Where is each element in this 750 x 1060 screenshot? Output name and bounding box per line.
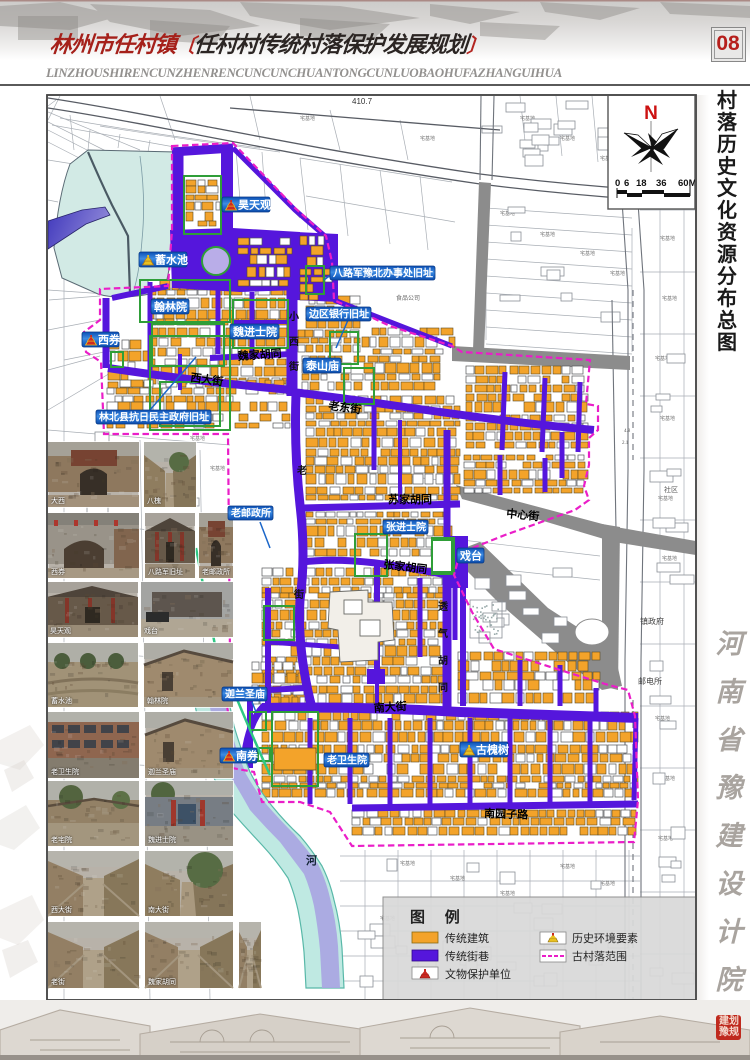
svg-text:宅基地: 宅基地 [500, 890, 515, 897]
svg-text:昊天观: 昊天观 [50, 627, 71, 635]
svg-text:戏台: 戏台 [144, 626, 158, 635]
svg-text:古村落范围: 古村落范围 [572, 949, 627, 963]
svg-text:6: 6 [624, 178, 629, 189]
svg-text:古槐树: 古槐树 [476, 743, 509, 757]
svg-text:胡: 胡 [438, 654, 448, 667]
svg-text:街: 街 [288, 360, 299, 373]
svg-text:戏台: 戏台 [459, 549, 482, 563]
svg-text:宅基地: 宅基地 [662, 555, 677, 562]
svg-text:迦兰圣庙: 迦兰圣庙 [148, 767, 176, 776]
svg-text:老街: 老街 [51, 977, 65, 986]
svg-text:南大街: 南大街 [148, 905, 169, 914]
svg-text:410.7: 410.7 [352, 97, 373, 106]
svg-text:宅基地: 宅基地 [580, 250, 595, 257]
svg-text:边区银行旧址: 边区银行旧址 [308, 308, 369, 321]
svg-text:街: 街 [293, 588, 304, 601]
svg-text:传统建筑: 传统建筑 [445, 931, 489, 945]
svg-text:4.8: 4.8 [624, 429, 631, 434]
svg-text:60M: 60M [678, 178, 697, 189]
svg-text:36: 36 [656, 178, 667, 189]
svg-text:宅基地: 宅基地 [210, 465, 225, 472]
svg-text:0: 0 [615, 178, 620, 189]
svg-text:老邮政所: 老邮政所 [202, 567, 230, 576]
svg-text:西券: 西券 [98, 333, 121, 347]
svg-text:宅基地: 宅基地 [300, 115, 315, 122]
svg-text:透: 透 [438, 600, 449, 613]
svg-text:文物保护单位: 文物保护单位 [445, 967, 511, 981]
svg-text:传统街巷: 传统街巷 [445, 949, 489, 963]
svg-text:蓄水池: 蓄水池 [51, 696, 72, 705]
svg-text:同: 同 [438, 682, 448, 694]
svg-text:宅基地: 宅基地 [450, 875, 465, 882]
svg-text:历史环境要素: 历史环境要素 [572, 931, 638, 945]
svg-text:翰林院: 翰林院 [147, 696, 168, 705]
svg-text:张进士院: 张进士院 [386, 521, 426, 534]
svg-text:N: N [644, 103, 658, 124]
svg-text:社区: 社区 [664, 485, 678, 494]
svg-text:邮电所: 邮电所 [638, 676, 662, 686]
svg-text:宅基地: 宅基地 [560, 135, 575, 142]
svg-text:老卫生院: 老卫生院 [51, 767, 79, 776]
svg-text:宅基地: 宅基地 [662, 295, 677, 302]
svg-text:宅基地: 宅基地 [658, 495, 673, 502]
svg-text:宅基地: 宅基地 [660, 415, 675, 422]
svg-text:林北县抗日民主政府旧址: 林北县抗日民主政府旧址 [99, 411, 209, 424]
svg-text:镇政府: 镇政府 [640, 616, 664, 626]
svg-text:迦兰圣庙: 迦兰圣庙 [225, 688, 265, 701]
svg-text:魏进士院: 魏进士院 [148, 835, 176, 844]
svg-text:魏家胡同: 魏家胡同 [148, 977, 176, 986]
svg-text:小: 小 [288, 310, 299, 323]
svg-text:泰山庙: 泰山庙 [305, 359, 339, 373]
svg-text:昊天观: 昊天观 [238, 199, 271, 212]
svg-text:八路军旧址: 八路军旧址 [148, 567, 183, 576]
svg-text:西大街: 西大街 [51, 905, 72, 914]
svg-text:河: 河 [306, 853, 317, 867]
svg-text:宅基地: 宅基地 [610, 270, 625, 277]
svg-text:八槐: 八槐 [147, 496, 161, 505]
svg-text:蓄水池: 蓄水池 [155, 253, 188, 267]
svg-text:老邮政所: 老邮政所 [230, 507, 271, 520]
svg-text:食品公司: 食品公司 [396, 294, 420, 302]
svg-text:苏家胡同: 苏家胡同 [388, 492, 432, 506]
svg-text:2.1: 2.1 [622, 441, 629, 446]
svg-text:宅基地: 宅基地 [540, 231, 555, 238]
svg-text:18: 18 [636, 178, 647, 189]
svg-text:西: 西 [289, 336, 299, 348]
svg-text:气: 气 [437, 627, 448, 640]
svg-text:宅基地: 宅基地 [660, 235, 675, 242]
svg-text:宅基地: 宅基地 [600, 880, 615, 887]
svg-text:翰林院: 翰林院 [154, 300, 187, 314]
svg-text:魏进士院: 魏进士院 [232, 325, 277, 339]
svg-text:宅基地: 宅基地 [400, 860, 415, 867]
svg-text:图 例: 图 例 [410, 908, 468, 926]
svg-text:老卫生院: 老卫生院 [326, 754, 367, 767]
svg-text:南券: 南券 [236, 749, 259, 763]
svg-text:宅基地: 宅基地 [560, 863, 575, 870]
svg-text:八路军豫北办事处旧址: 八路军豫北办事处旧址 [332, 267, 433, 280]
svg-text:宅基地: 宅基地 [190, 435, 205, 442]
svg-text:大西: 大西 [51, 496, 65, 505]
svg-text:西券: 西券 [51, 567, 65, 576]
svg-text:宅基地: 宅基地 [420, 135, 435, 142]
svg-text:老宅院: 老宅院 [51, 835, 72, 844]
svg-text:老: 老 [296, 464, 307, 477]
